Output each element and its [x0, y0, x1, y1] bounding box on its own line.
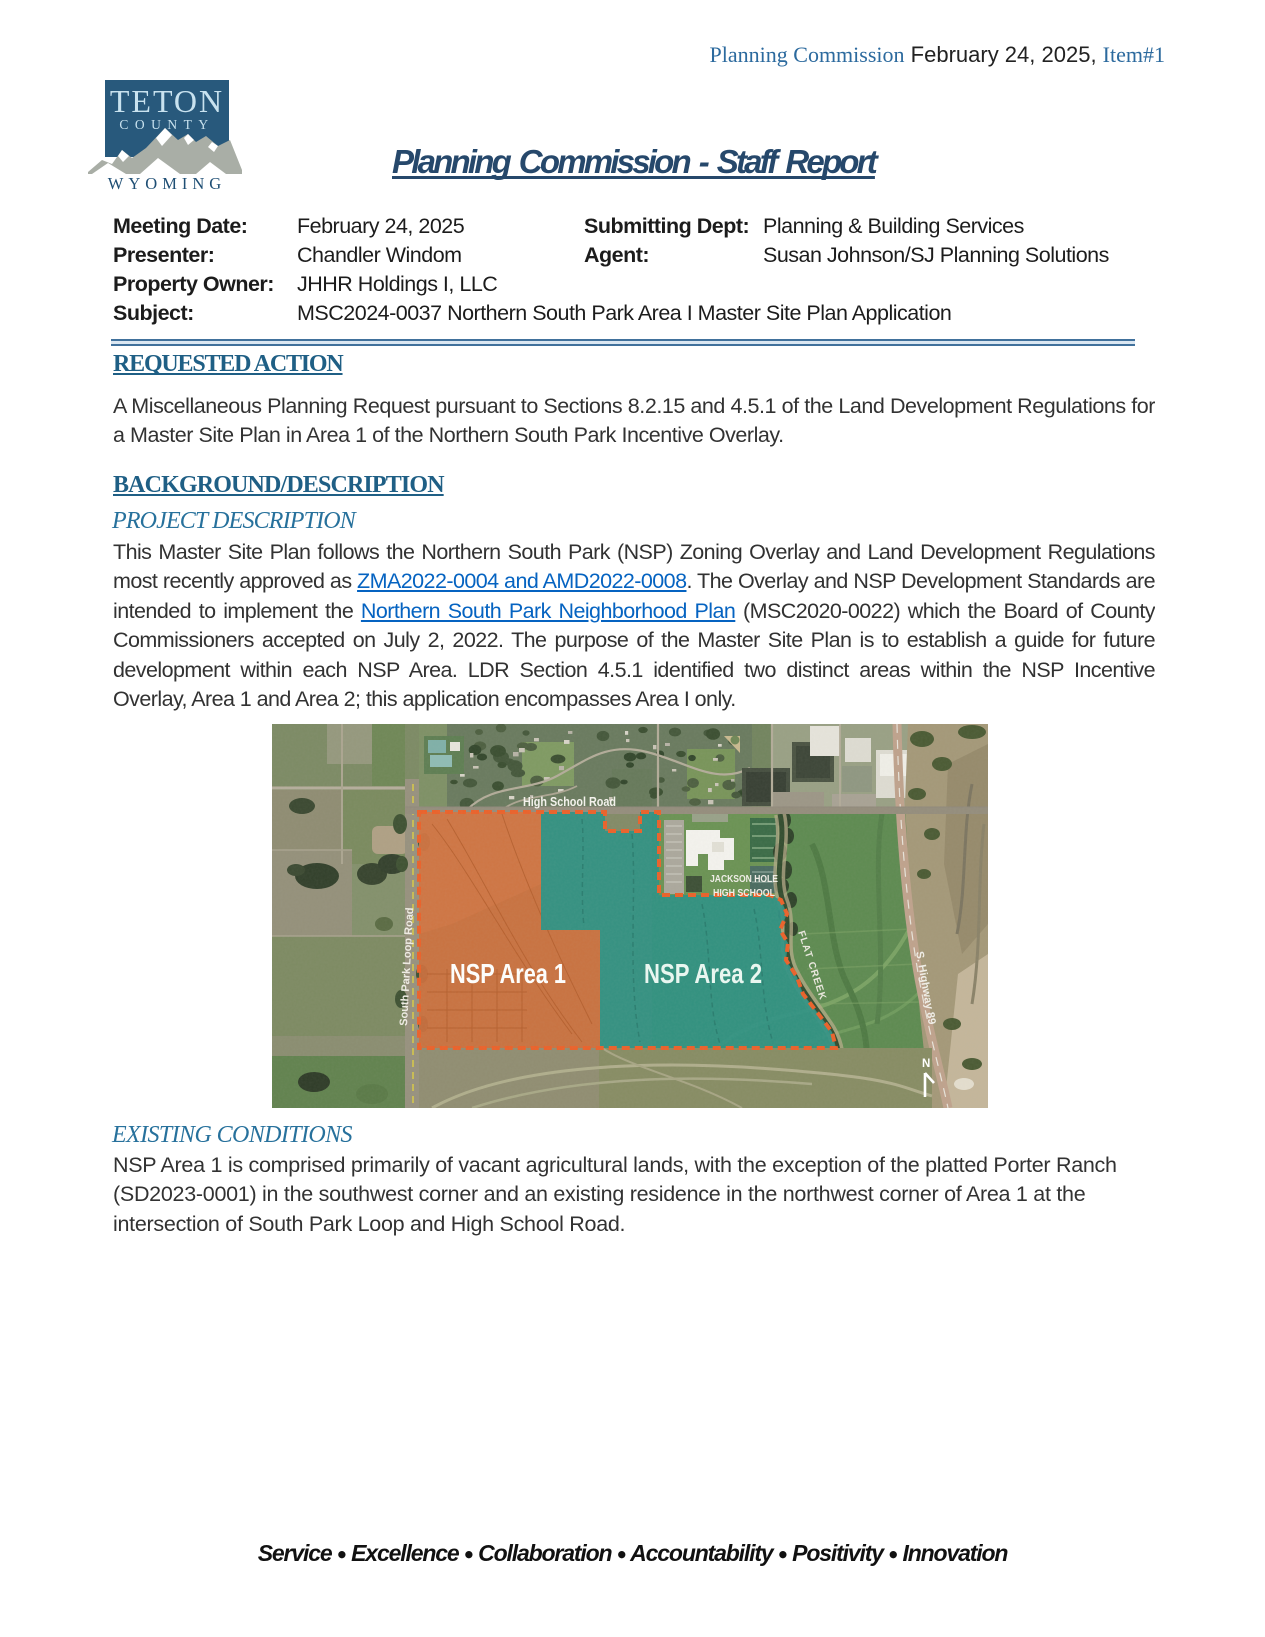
svg-text:JACKSON HOLE: JACKSON HOLE — [710, 873, 778, 885]
svg-text:NSP Area 2: NSP Area 2 — [644, 958, 762, 989]
svg-text:COUNTY: COUNTY — [119, 117, 214, 132]
svg-text:NSP Area 1: NSP Area 1 — [450, 958, 566, 989]
svg-text:WYOMING: WYOMING — [108, 174, 226, 192]
svg-text:HIGH SCHOOL: HIGH SCHOOL — [713, 887, 775, 899]
svg-text:High School Road: High School Road — [523, 794, 616, 809]
svg-text:TETON: TETON — [110, 83, 224, 119]
svg-text:N: N — [922, 1058, 930, 1070]
